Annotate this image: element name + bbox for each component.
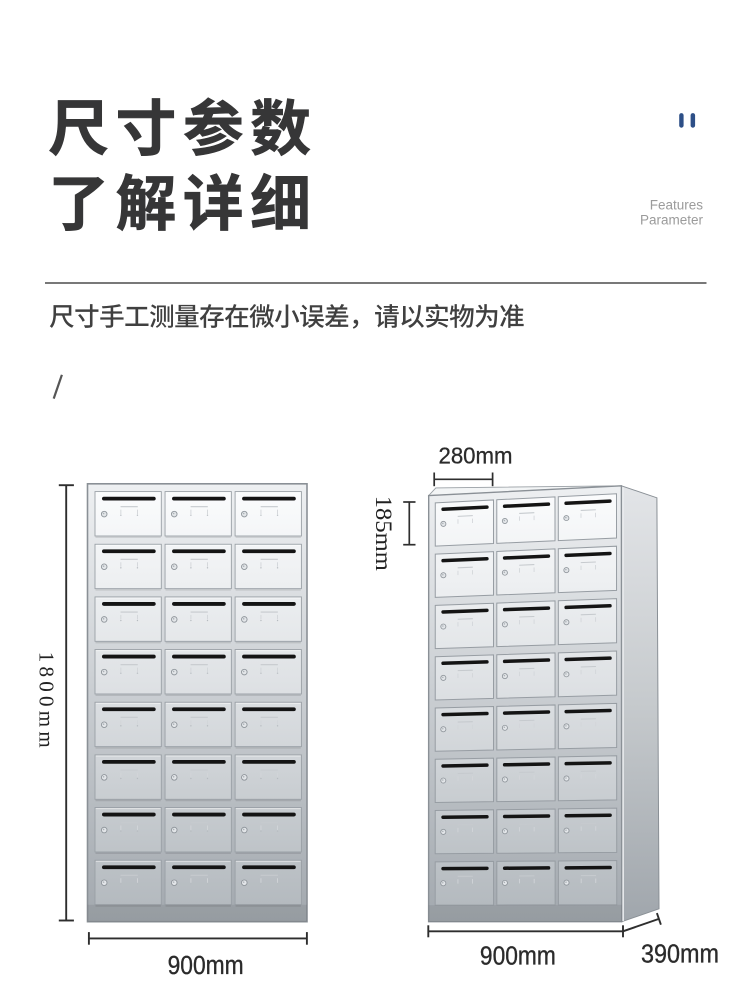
svg-text:Features: Features [650, 198, 704, 213]
svg-text:900mm: 900mm [480, 943, 556, 971]
svg-text:1800mm: 1800mm [34, 652, 58, 748]
svg-text:280mm: 280mm [439, 443, 513, 469]
svg-text:390mm: 390mm [641, 941, 719, 969]
svg-text:Parameter: Parameter [640, 213, 704, 228]
svg-text:900mm: 900mm [168, 952, 244, 980]
svg-text:185mm: 185mm [371, 496, 396, 571]
